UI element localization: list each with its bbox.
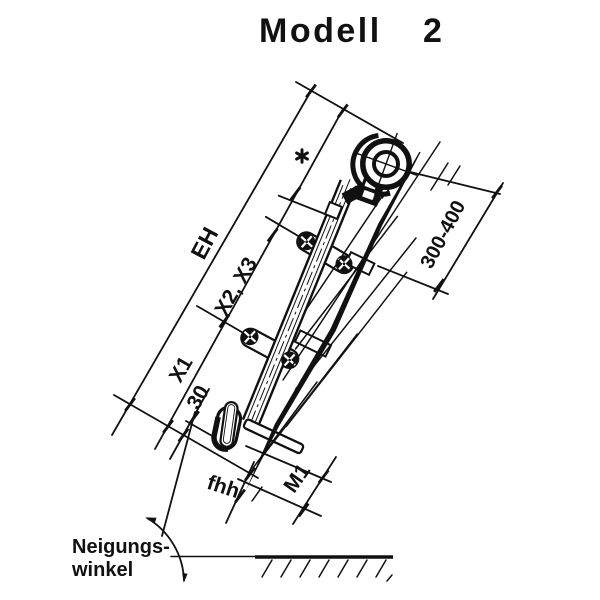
- svg-text:winkel: winkel: [71, 559, 133, 581]
- svg-text:Modell: Modell: [259, 12, 382, 50]
- svg-text:2: 2: [423, 12, 442, 50]
- svg-text:Neigungs-: Neigungs-: [72, 536, 170, 558]
